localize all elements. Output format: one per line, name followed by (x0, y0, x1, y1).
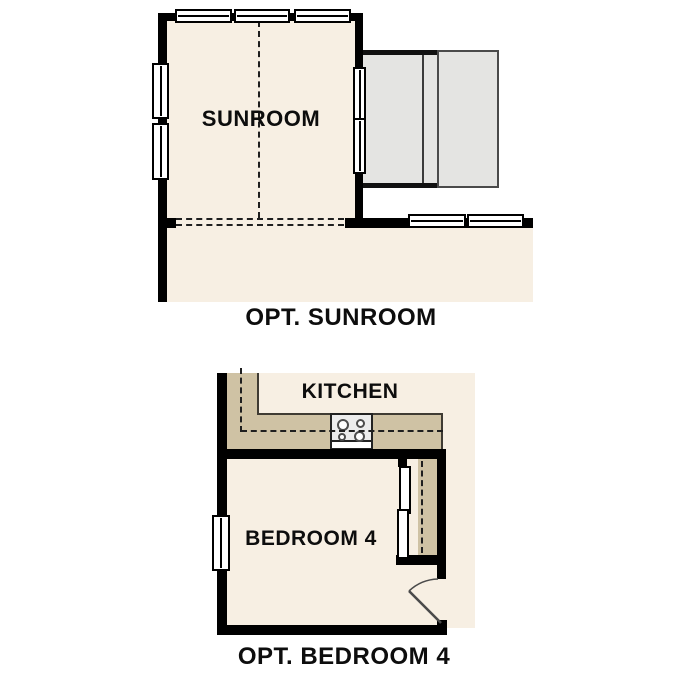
window-icon (467, 214, 524, 228)
interior-floor (359, 226, 533, 302)
bedroom4-caption: OPT. BEDROOM 4 (238, 643, 450, 671)
wall-bedroom-top (217, 449, 445, 459)
patio-slab-left (363, 50, 437, 188)
window-icon (353, 118, 366, 174)
patio-divider-line (422, 55, 424, 183)
window-icon (152, 63, 169, 119)
bedroom4-room-label: BEDROOM 4 (245, 527, 377, 551)
sliding-door-panel-icon (399, 466, 411, 514)
burner-icon (338, 433, 346, 441)
door-swing-icon (395, 573, 447, 625)
window-icon (234, 9, 290, 23)
floorplan-canvas: SUNROOM OPT. SUNROOM (0, 0, 687, 687)
window-icon (175, 9, 232, 23)
patio-slab-right (437, 50, 499, 188)
sliding-door-panel-icon (397, 509, 409, 559)
opening-dashed-line-1 (176, 218, 344, 220)
kitchen-counter-vertical (227, 373, 259, 450)
window-icon (353, 67, 366, 123)
kitchen-dashed-line-vertical (240, 368, 242, 432)
window-icon (152, 123, 169, 180)
sunroom-caption: OPT. SUNROOM (245, 304, 436, 332)
burner-icon (356, 419, 365, 428)
cooktop-front-band (332, 440, 371, 448)
burner-icon (354, 431, 365, 442)
window-icon (294, 9, 351, 23)
kitchen-room-label: KITCHEN (302, 380, 399, 404)
kitchen-dashed-line-horizontal (241, 430, 443, 432)
window-icon (408, 214, 466, 228)
sunroom-room-label: SUNROOM (202, 106, 320, 132)
closet-rod-dashed-line (421, 461, 423, 553)
wall-stub-bottom-left (158, 218, 176, 228)
window-icon (212, 515, 230, 571)
wall-bedroom-bottom (217, 625, 447, 635)
sunroom-floor (158, 13, 363, 302)
wall-bedroom-left (217, 373, 227, 635)
opening-dashed-line-2 (176, 224, 344, 226)
